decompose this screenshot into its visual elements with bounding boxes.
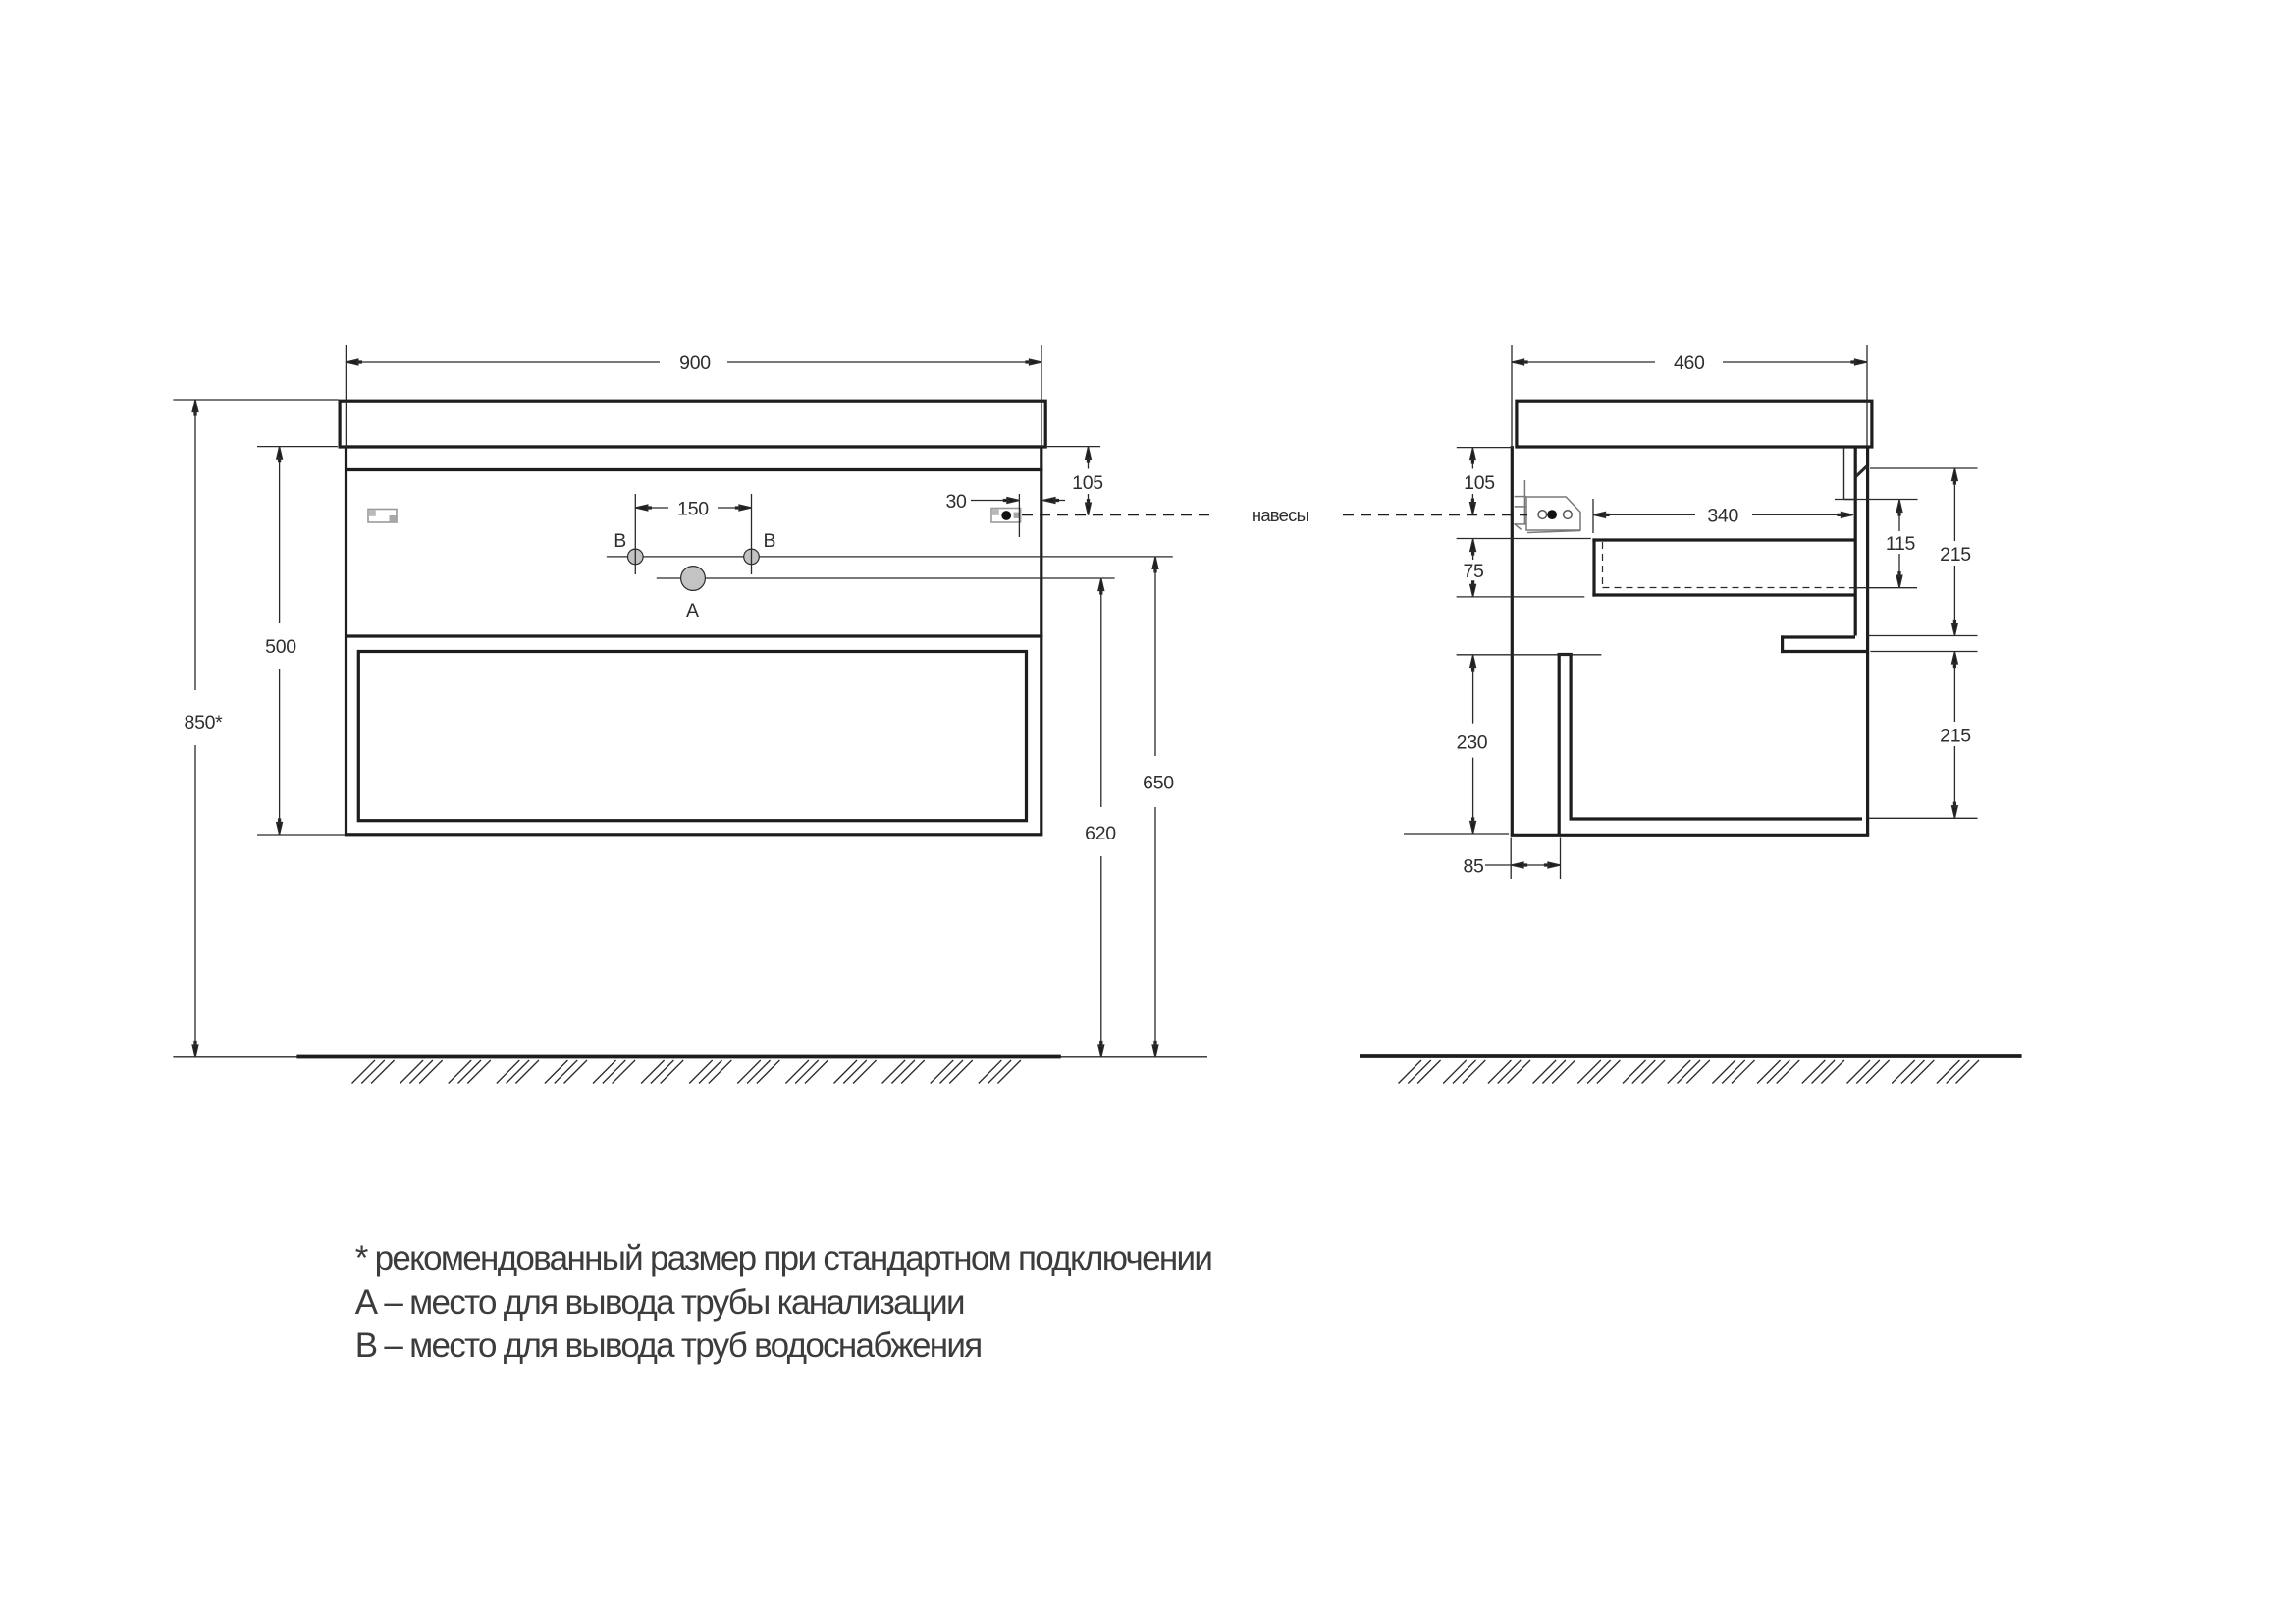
svg-text:В – место для вывода труб водо: В – место для вывода труб водоснабжения [355,1326,982,1365]
svg-text:230: 230 [1457,732,1488,754]
svg-text:A: A [686,600,699,622]
svg-text:115: 115 [1886,533,1916,555]
svg-text:650: 650 [1143,773,1174,794]
svg-text:215: 215 [1940,726,1971,747]
svg-text:75: 75 [1463,561,1484,582]
svg-text:460: 460 [1674,352,1705,374]
svg-text:навесы: навесы [1252,505,1309,525]
svg-text:105: 105 [1464,472,1495,494]
svg-text:340: 340 [1707,506,1738,527]
svg-text:900: 900 [679,352,711,374]
svg-text:620: 620 [1085,823,1116,844]
svg-text:А – место для вывода трубы кан: А – место для вывода трубы канализации [355,1283,964,1322]
svg-text:30: 30 [945,491,967,513]
svg-text:150: 150 [677,499,709,520]
svg-text:500: 500 [265,636,296,658]
svg-text:85: 85 [1463,856,1484,878]
svg-text:B: B [614,530,626,552]
svg-text:B: B [763,530,775,552]
svg-text:* рекомендованный размер при с: * рекомендованный размер при стандартном… [355,1239,1212,1277]
svg-text:850*: 850* [185,712,224,733]
svg-text:105: 105 [1072,472,1103,494]
svg-text:215: 215 [1940,544,1971,566]
